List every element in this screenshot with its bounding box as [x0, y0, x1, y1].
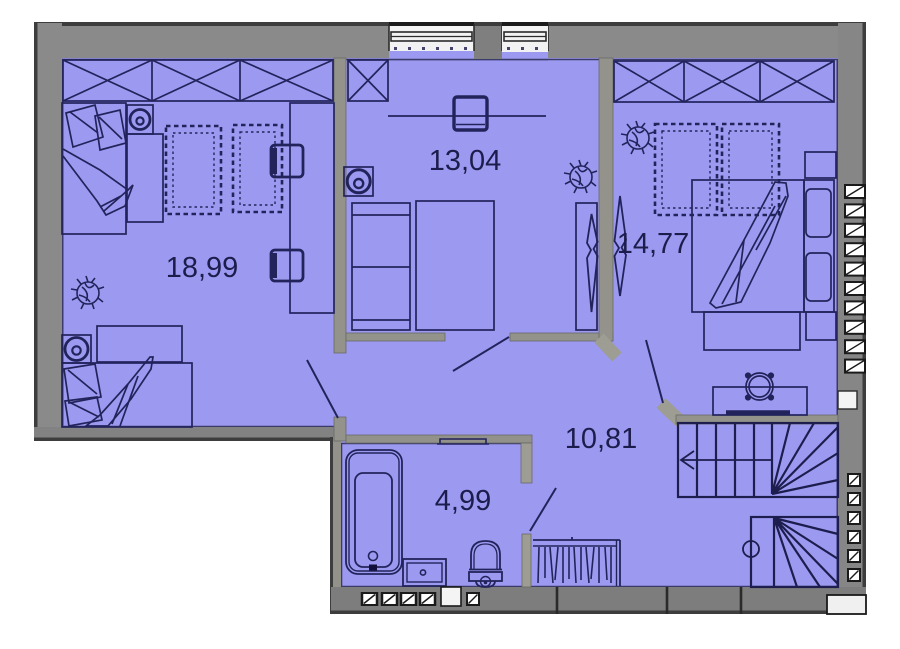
- svg-text:10,81: 10,81: [565, 423, 638, 455]
- svg-text:18,99: 18,99: [166, 252, 239, 284]
- svg-text:13,04: 13,04: [429, 145, 502, 177]
- svg-text:14,77: 14,77: [617, 228, 690, 260]
- svg-text:4,99: 4,99: [435, 485, 491, 517]
